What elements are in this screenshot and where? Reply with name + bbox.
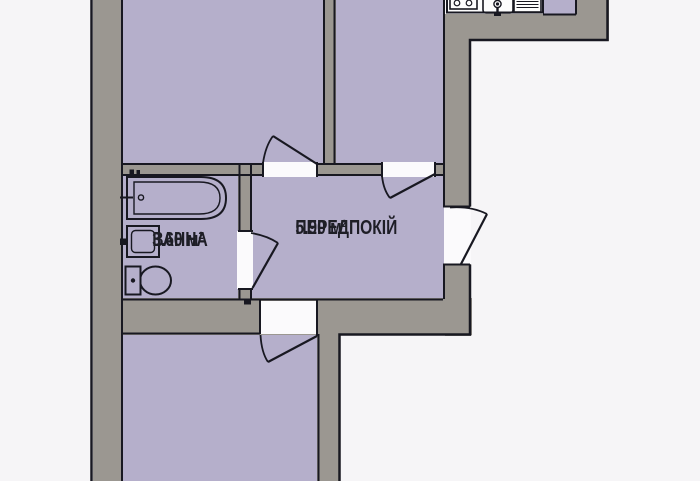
kitchen-stove-icon (450, 0, 477, 9)
door-bathroom (251, 233, 278, 288)
toilet-icon (126, 267, 172, 295)
wall-end-stub (244, 300, 251, 305)
washbasin-faucet-icon (120, 239, 127, 246)
bathroom-area: 3.60 м² (152, 231, 203, 249)
floor-plan: ВАННА 3.60 м² ПЕРЕДПОКІЙ 5.90 м² (0, 0, 700, 481)
kitchen-sink-icon (483, 0, 513, 16)
dish-drainer-icon (514, 0, 541, 12)
door-room-top-middle (382, 174, 435, 198)
door-entrance (450, 207, 487, 264)
door-room-top-left (263, 136, 317, 164)
hallway-area: 5.90 м² (295, 218, 346, 238)
bathtub-icon (120, 170, 226, 220)
plan-linework (0, 0, 700, 481)
door-room-bottom (261, 335, 318, 362)
